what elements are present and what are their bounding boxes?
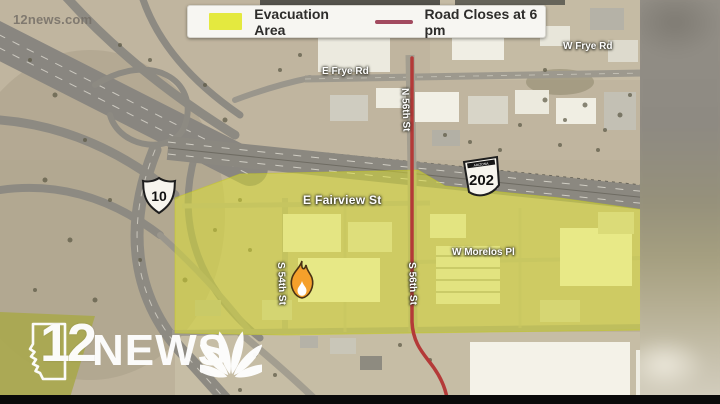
logo-number: 12 bbox=[40, 312, 94, 374]
video-blur-edge bbox=[640, 0, 720, 404]
road-closure-line-icon bbox=[375, 20, 414, 24]
road-closure-legend-label: Road Closes at 6 pm bbox=[424, 6, 545, 38]
street-label-e-fairview-st: E Fairview St bbox=[303, 193, 382, 207]
street-label-w-morelos-pl: W Morelos Pl bbox=[452, 247, 515, 258]
street-label-w-frye-rd: W Frye Rd bbox=[563, 41, 612, 52]
watermark: 12news.com bbox=[13, 12, 92, 27]
street-label-e-frye-rd: E Frye Rd bbox=[322, 66, 369, 77]
nbc-peacock-icon bbox=[200, 324, 262, 382]
station-logo: 12 NEWS bbox=[28, 320, 268, 390]
svg-text:202: 202 bbox=[469, 172, 494, 189]
svg-text:10: 10 bbox=[151, 188, 167, 204]
evacuation-legend-label: Evacuation Area bbox=[254, 6, 350, 38]
map-legend: Evacuation Area Road Closes at 6 pm bbox=[187, 5, 546, 38]
fire-icon bbox=[286, 260, 318, 302]
interstate-10-shield-icon: 10 bbox=[141, 176, 177, 216]
street-label-s-56th-st: S 56th St bbox=[406, 262, 418, 305]
news-video-frame: 12news.com Evacuation Area Road Closes a… bbox=[0, 0, 720, 404]
letterbox-bar bbox=[0, 395, 720, 404]
loop-202-shield-icon: ARIZONA 202 bbox=[460, 153, 502, 201]
evacuation-swatch-icon bbox=[209, 13, 242, 30]
street-label-s-54th-st: S 54th St bbox=[275, 262, 287, 305]
street-label-n-56th-st: N 56th St bbox=[399, 88, 412, 132]
